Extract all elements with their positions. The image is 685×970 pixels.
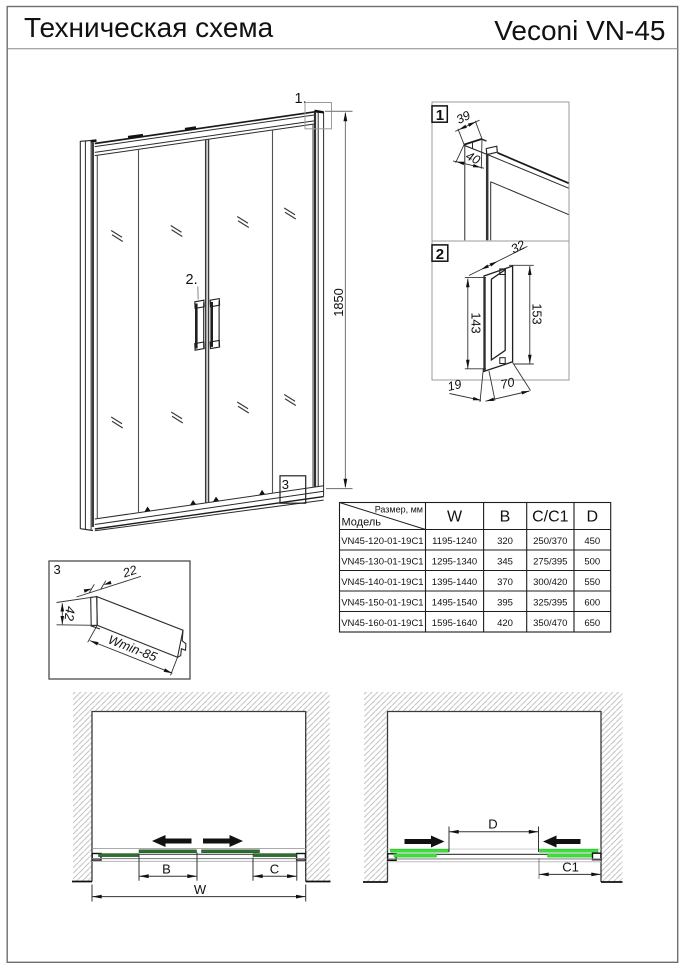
svg-text:1395-1440: 1395-1440 — [432, 577, 477, 588]
svg-text:B: B — [500, 509, 511, 526]
svg-text:VN45-160-01-19C1: VN45-160-01-19C1 — [341, 618, 423, 629]
svg-text:420: 420 — [497, 618, 513, 629]
svg-text:Модель: Модель — [342, 517, 382, 529]
svg-text:3: 3 — [282, 477, 289, 492]
svg-text:Размер, мм: Размер, мм — [375, 505, 423, 515]
svg-text:370: 370 — [497, 577, 513, 588]
svg-text:1295-1340: 1295-1340 — [432, 556, 477, 567]
svg-text:1: 1 — [436, 107, 444, 124]
svg-text:VN45-140-01-19C1: VN45-140-01-19C1 — [341, 577, 423, 588]
svg-text:D: D — [488, 816, 497, 831]
svg-text:250/370: 250/370 — [533, 536, 567, 547]
svg-text:1195-1240: 1195-1240 — [432, 536, 477, 547]
svg-text:VN45-120-01-19C1: VN45-120-01-19C1 — [341, 536, 423, 547]
svg-text:320: 320 — [497, 536, 513, 547]
svg-text:C1: C1 — [562, 860, 579, 875]
svg-text:153: 153 — [530, 303, 545, 324]
svg-text:395: 395 — [497, 597, 513, 608]
svg-text:B: B — [162, 862, 171, 877]
svg-text:550: 550 — [584, 577, 600, 588]
svg-text:C: C — [270, 862, 279, 877]
svg-text:W: W — [194, 882, 207, 897]
svg-text:345: 345 — [497, 556, 513, 567]
svg-text:1495-1540: 1495-1540 — [432, 597, 477, 608]
svg-text:143: 143 — [469, 312, 484, 333]
svg-text:C/C1: C/C1 — [532, 509, 569, 526]
svg-text:2: 2 — [436, 246, 444, 263]
svg-text:W: W — [447, 509, 463, 526]
svg-text:D: D — [587, 509, 599, 526]
svg-text:VN45-130-01-19C1: VN45-130-01-19C1 — [341, 556, 423, 567]
svg-text:Veconi VN-45: Veconi VN-45 — [494, 15, 665, 46]
svg-text:42: 42 — [61, 605, 78, 622]
svg-text:650: 650 — [584, 618, 600, 629]
svg-text:Техническая схема: Техническая схема — [24, 12, 274, 43]
svg-text:2.: 2. — [186, 272, 198, 288]
svg-text:3: 3 — [54, 562, 61, 577]
svg-text:1850: 1850 — [331, 288, 346, 316]
svg-text:325/395: 325/395 — [533, 597, 567, 608]
svg-text:350/470: 350/470 — [533, 618, 567, 629]
svg-text:1595-1640: 1595-1640 — [432, 618, 477, 629]
svg-text:450: 450 — [584, 536, 600, 547]
svg-text:VN45-150-01-19C1: VN45-150-01-19C1 — [341, 597, 423, 608]
svg-text:600: 600 — [584, 597, 600, 608]
svg-text:500: 500 — [584, 556, 600, 567]
svg-text:275/395: 275/395 — [533, 556, 567, 567]
svg-text:300/420: 300/420 — [533, 577, 567, 588]
